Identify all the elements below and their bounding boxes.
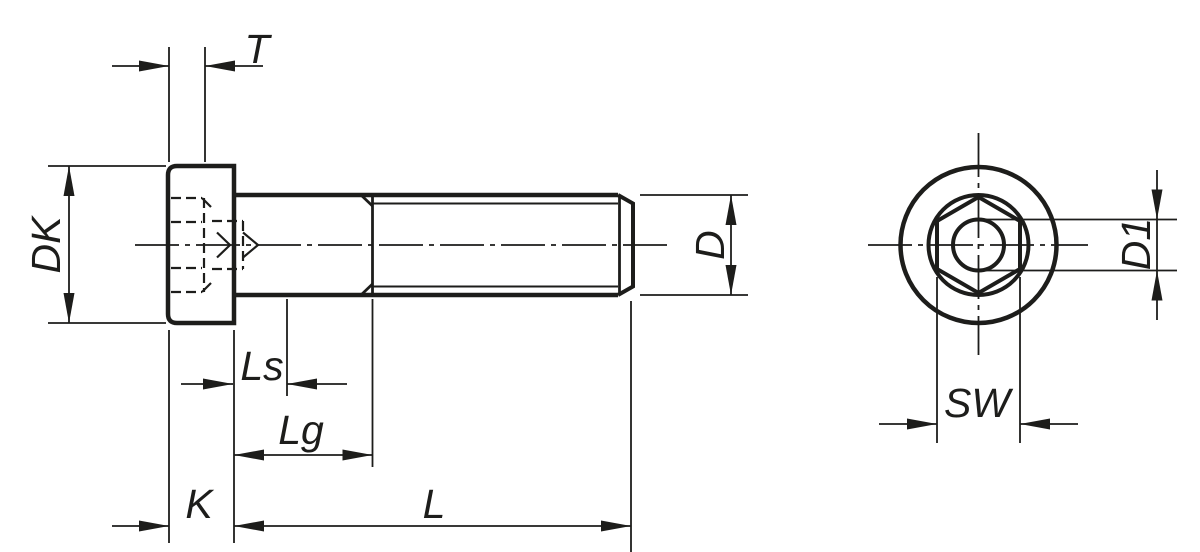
arrowhead <box>1152 190 1163 220</box>
screw-technical-drawing: T DK D Ls Lg K <box>0 0 1200 552</box>
dimension-t: T <box>112 26 272 162</box>
arrowhead <box>64 293 75 323</box>
dimension-ls: Ls <box>181 299 347 396</box>
dim-label-sw: SW <box>944 380 1013 426</box>
arrowhead <box>203 379 233 390</box>
arrowhead <box>1020 419 1050 430</box>
arrowhead <box>234 450 264 461</box>
dim-label-l: L <box>423 481 446 527</box>
arrowhead <box>726 265 737 295</box>
dim-label-t: T <box>244 26 272 72</box>
arrowhead <box>287 379 317 390</box>
dim-label-d1: D1 <box>1113 218 1159 270</box>
socket-chamfer <box>202 283 211 292</box>
arrowhead <box>205 61 235 72</box>
dim-label-d: D <box>687 230 733 260</box>
end-view <box>868 133 1088 355</box>
arrowhead <box>1152 271 1163 301</box>
arrowhead <box>601 521 631 532</box>
dimension-k: K <box>112 330 234 543</box>
arrowhead <box>139 521 169 532</box>
arrowhead <box>64 166 75 196</box>
dimension-sw: SW <box>879 277 1078 443</box>
dim-label-lg: Lg <box>278 407 324 453</box>
arrowhead <box>343 450 373 461</box>
dim-label-ls: Ls <box>240 343 283 389</box>
side-view <box>135 166 668 323</box>
arrowhead <box>139 61 169 72</box>
drawing-canvas: T DK D Ls Lg K <box>0 0 1200 552</box>
arrowhead <box>907 419 937 430</box>
dim-label-dk: DK <box>23 215 69 274</box>
arrowhead <box>726 195 737 225</box>
arrowhead <box>234 521 264 532</box>
dim-label-k: K <box>185 481 214 527</box>
